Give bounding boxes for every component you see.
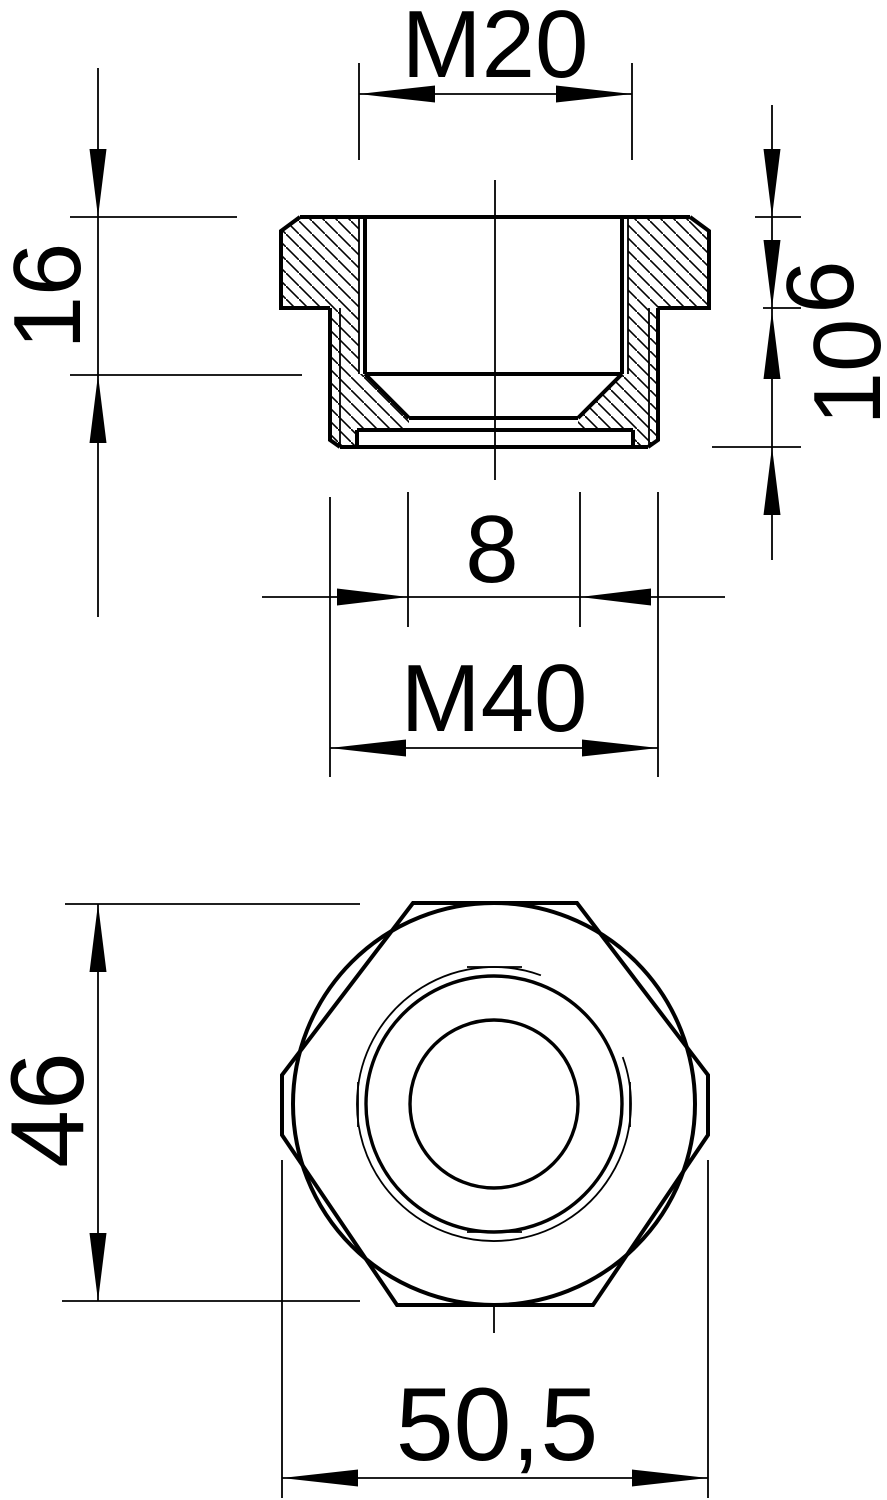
dim10-arrow-bottom	[764, 447, 781, 515]
dimension-50-5: 50,5	[282, 1160, 708, 1498]
dim16-extension-lines	[70, 217, 302, 375]
technical-drawing-page: M20 16 6 10 8 M40	[0, 0, 887, 1500]
dim16-arrow-bottom	[90, 375, 107, 443]
dim46-arrow-bottom	[90, 1233, 107, 1301]
dim8-arrow-right	[580, 589, 651, 606]
dim6-arrow-bottom	[764, 311, 781, 379]
dim46-arrow-top	[90, 904, 107, 972]
dimension-label-8: 8	[465, 496, 518, 603]
dimension-6-10: 6 10	[712, 105, 887, 560]
dimension-16: 16	[0, 68, 302, 617]
dimension-label-m40: M40	[401, 645, 588, 752]
dim8-arrow-left	[337, 589, 408, 606]
quadrant-ticks	[358, 967, 630, 1232]
hex-body-outline	[282, 903, 708, 1305]
dimension-8: 8	[262, 492, 725, 627]
bottom-hole-circle	[410, 1020, 578, 1188]
reducer-engineering-drawing: M20 16 6 10 8 M40	[0, 0, 887, 1500]
dim46-extension-lines	[62, 904, 360, 1301]
front-view	[282, 903, 708, 1333]
dimension-label-10: 10	[794, 319, 887, 426]
dimension-label-m20: M20	[402, 0, 589, 98]
section-view	[281, 180, 709, 480]
dimension-46: 46	[0, 904, 360, 1301]
dim16-arrow-top	[90, 149, 107, 217]
dimension-label-50-5: 50,5	[396, 1367, 598, 1483]
hatch-region-right	[578, 217, 709, 447]
m20-bore-circle	[366, 976, 622, 1232]
m20-thread-arc	[357, 967, 631, 1241]
dim6-10-extension-ticks	[712, 217, 801, 447]
m40-arrow-left	[330, 740, 406, 757]
dimension-label-46: 46	[0, 1052, 106, 1168]
dim505-arrow-right	[632, 1470, 708, 1487]
hatch-region-left	[281, 217, 409, 447]
m40-arrow-right	[582, 740, 658, 757]
dim6-arrow-top	[764, 149, 781, 217]
dimension-label-16: 16	[0, 243, 101, 350]
dimension-label-6: 6	[767, 260, 874, 313]
dimension-m20: M20	[359, 0, 632, 160]
dim505-arrow-left	[282, 1470, 358, 1487]
